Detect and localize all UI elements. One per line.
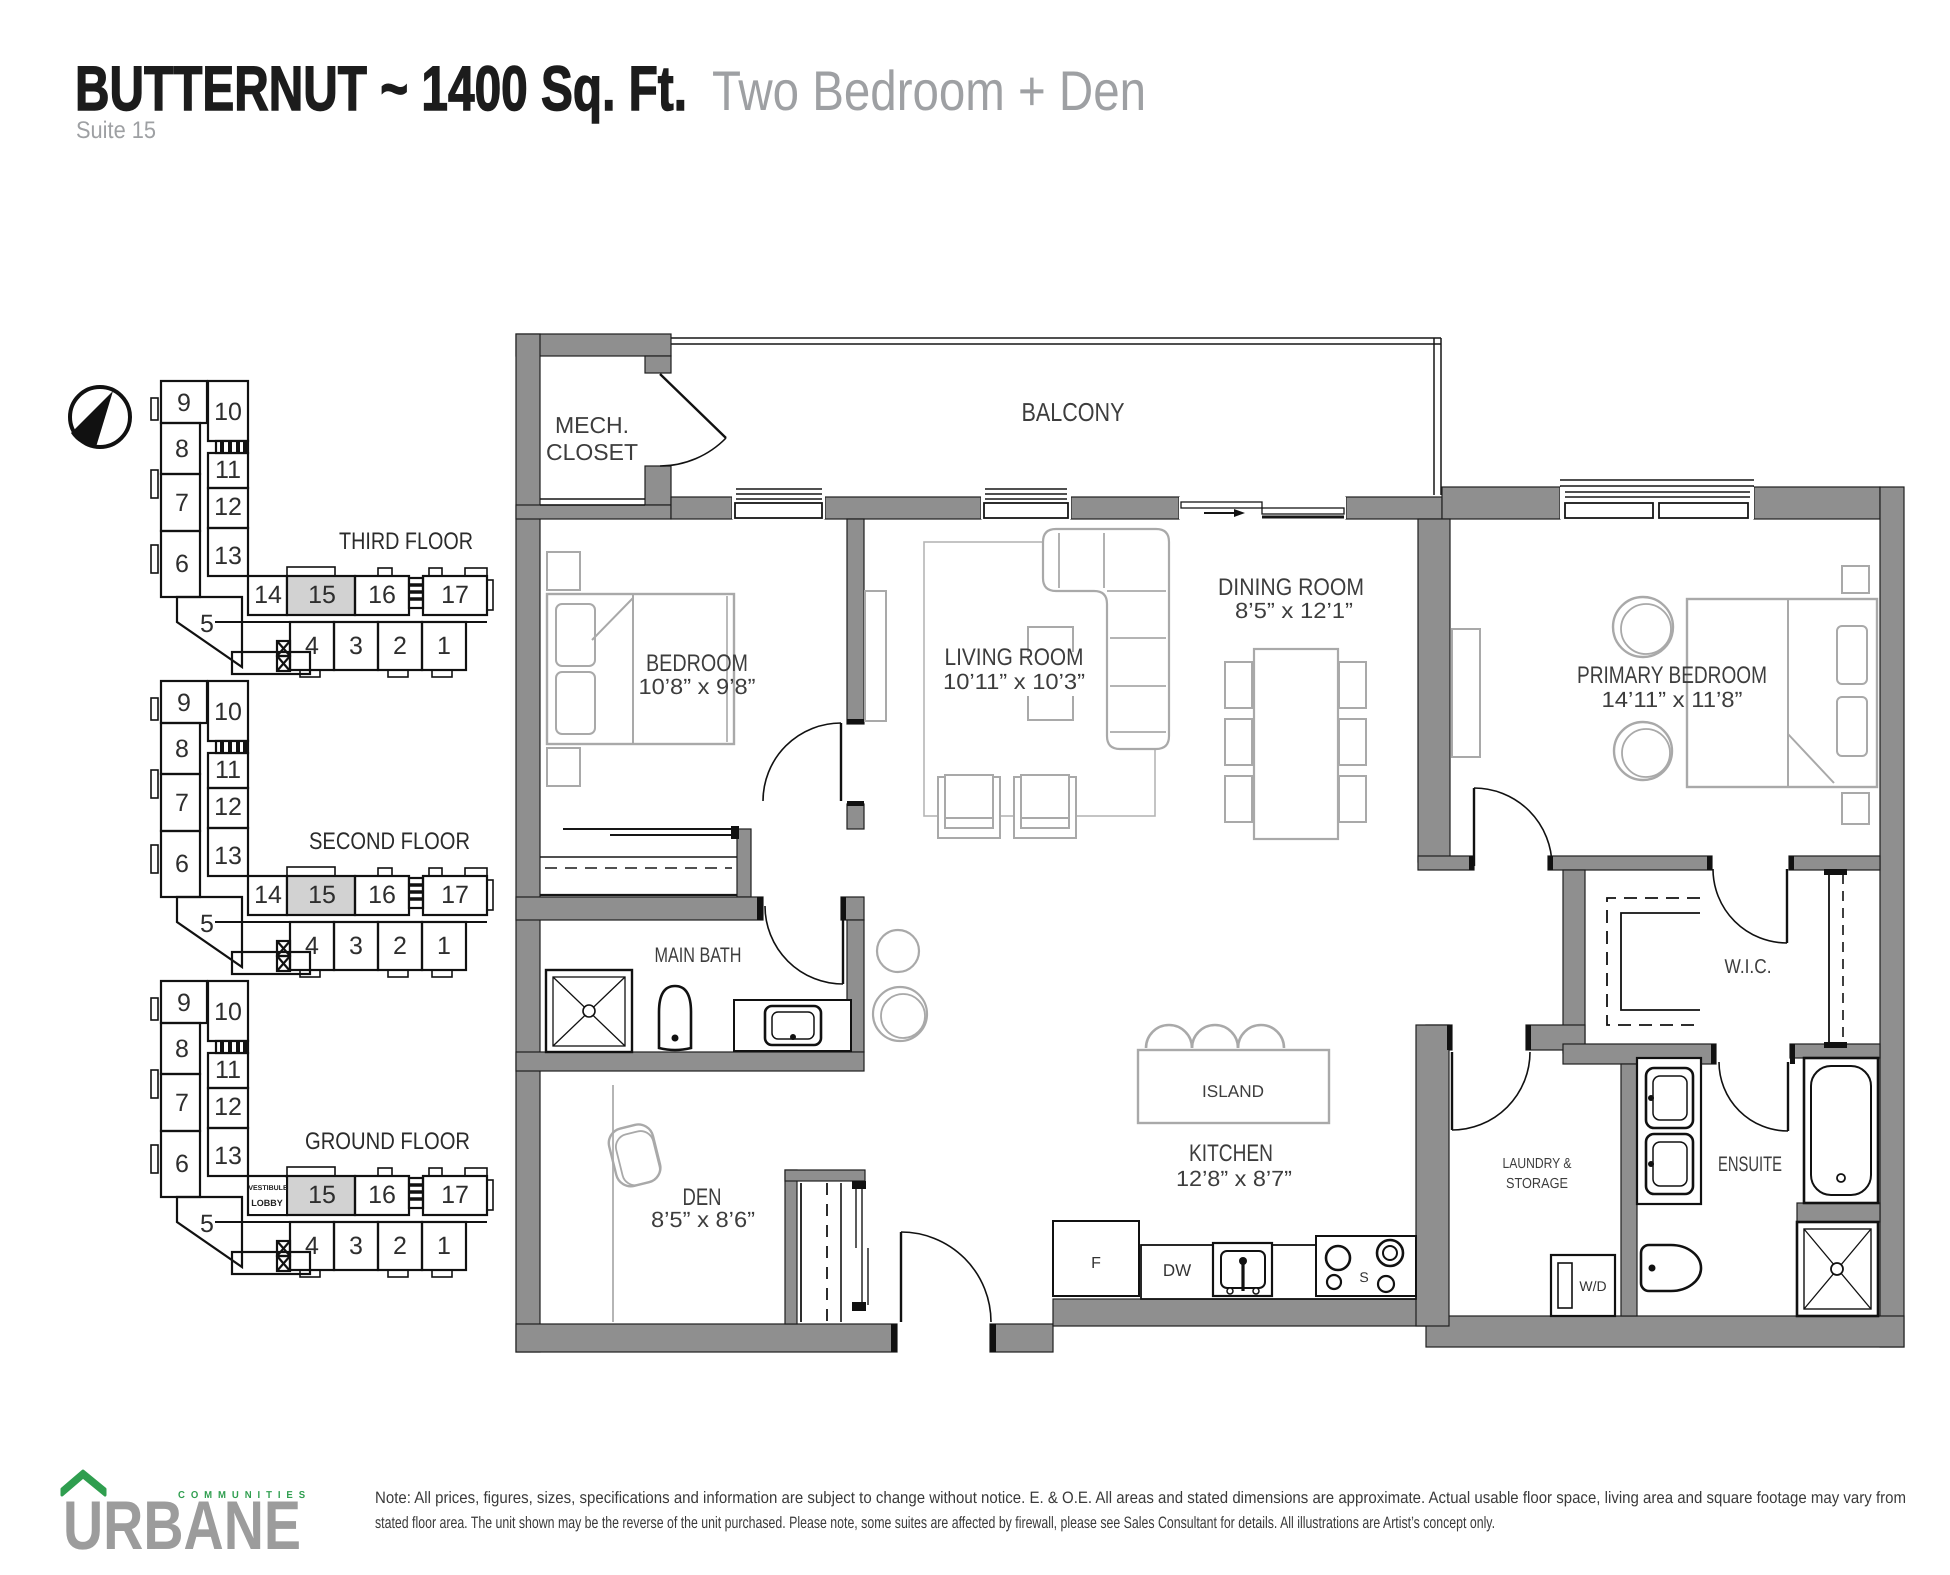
svg-text:10’8” x 9’8”: 10’8” x 9’8” — [639, 674, 756, 699]
svg-text:W/D: W/D — [1579, 1278, 1606, 1294]
svg-text:LOBBY: LOBBY — [251, 1198, 283, 1208]
svg-text:Two Bedroom + Den: Two Bedroom + Den — [712, 59, 1146, 122]
svg-text:CLOSET: CLOSET — [546, 439, 638, 465]
svg-text:10’11” x 10’3”: 10’11” x 10’3” — [943, 669, 1085, 694]
svg-text:SECOND FLOOR: SECOND FLOOR — [309, 828, 470, 855]
svg-text:VESTIBULE: VESTIBULE — [248, 1185, 288, 1192]
svg-text:W.I.C.: W.I.C. — [1725, 956, 1772, 978]
svg-text:LIVING ROOM: LIVING ROOM — [945, 644, 1084, 671]
svg-text:MECH.: MECH. — [555, 412, 629, 438]
svg-text:COMMUNITIES: COMMUNITIES — [178, 1490, 311, 1501]
svg-text:stated floor area. The unit sh: stated floor area. The unit shown may be… — [375, 1514, 1495, 1532]
svg-text:GROUND FLOOR: GROUND FLOOR — [305, 1128, 470, 1155]
svg-text:THIRD FLOOR: THIRD FLOOR — [339, 528, 473, 555]
svg-text:8’5” x 12’1”: 8’5” x 12’1” — [1235, 598, 1353, 623]
svg-text:LAUNDRY &: LAUNDRY & — [1503, 1156, 1572, 1172]
svg-text:PRIMARY BEDROOM: PRIMARY BEDROOM — [1577, 662, 1767, 689]
svg-text:ENSUITE: ENSUITE — [1718, 1153, 1782, 1176]
svg-text:Suite 15: Suite 15 — [76, 117, 156, 144]
svg-text:Note: All prices, figures, siz: Note: All prices, figures, sizes, specif… — [375, 1489, 1906, 1507]
svg-text:ISLAND: ISLAND — [1202, 1082, 1264, 1101]
svg-text:BUTTERNUT ~ 1400 Sq. Ft.: BUTTERNUT ~ 1400 Sq. Ft. — [75, 54, 687, 124]
svg-text:KITCHEN: KITCHEN — [1189, 1140, 1273, 1167]
svg-text:14’11” x 11’8”: 14’11” x 11’8” — [1602, 687, 1743, 712]
svg-text:DINING ROOM: DINING ROOM — [1218, 574, 1364, 601]
svg-text:12’8” x 8’7”: 12’8” x 8’7” — [1176, 1166, 1292, 1191]
svg-text:8’5” x 8’6”: 8’5” x 8’6” — [651, 1207, 755, 1232]
svg-text:BEDROOM: BEDROOM — [646, 650, 748, 677]
svg-text:F: F — [1091, 1255, 1101, 1272]
svg-text:S: S — [1359, 1269, 1368, 1285]
svg-text:STORAGE: STORAGE — [1506, 1176, 1568, 1192]
svg-text:BALCONY: BALCONY — [1022, 397, 1125, 427]
svg-text:MAIN BATH: MAIN BATH — [655, 944, 742, 967]
svg-text:DW: DW — [1163, 1261, 1191, 1280]
